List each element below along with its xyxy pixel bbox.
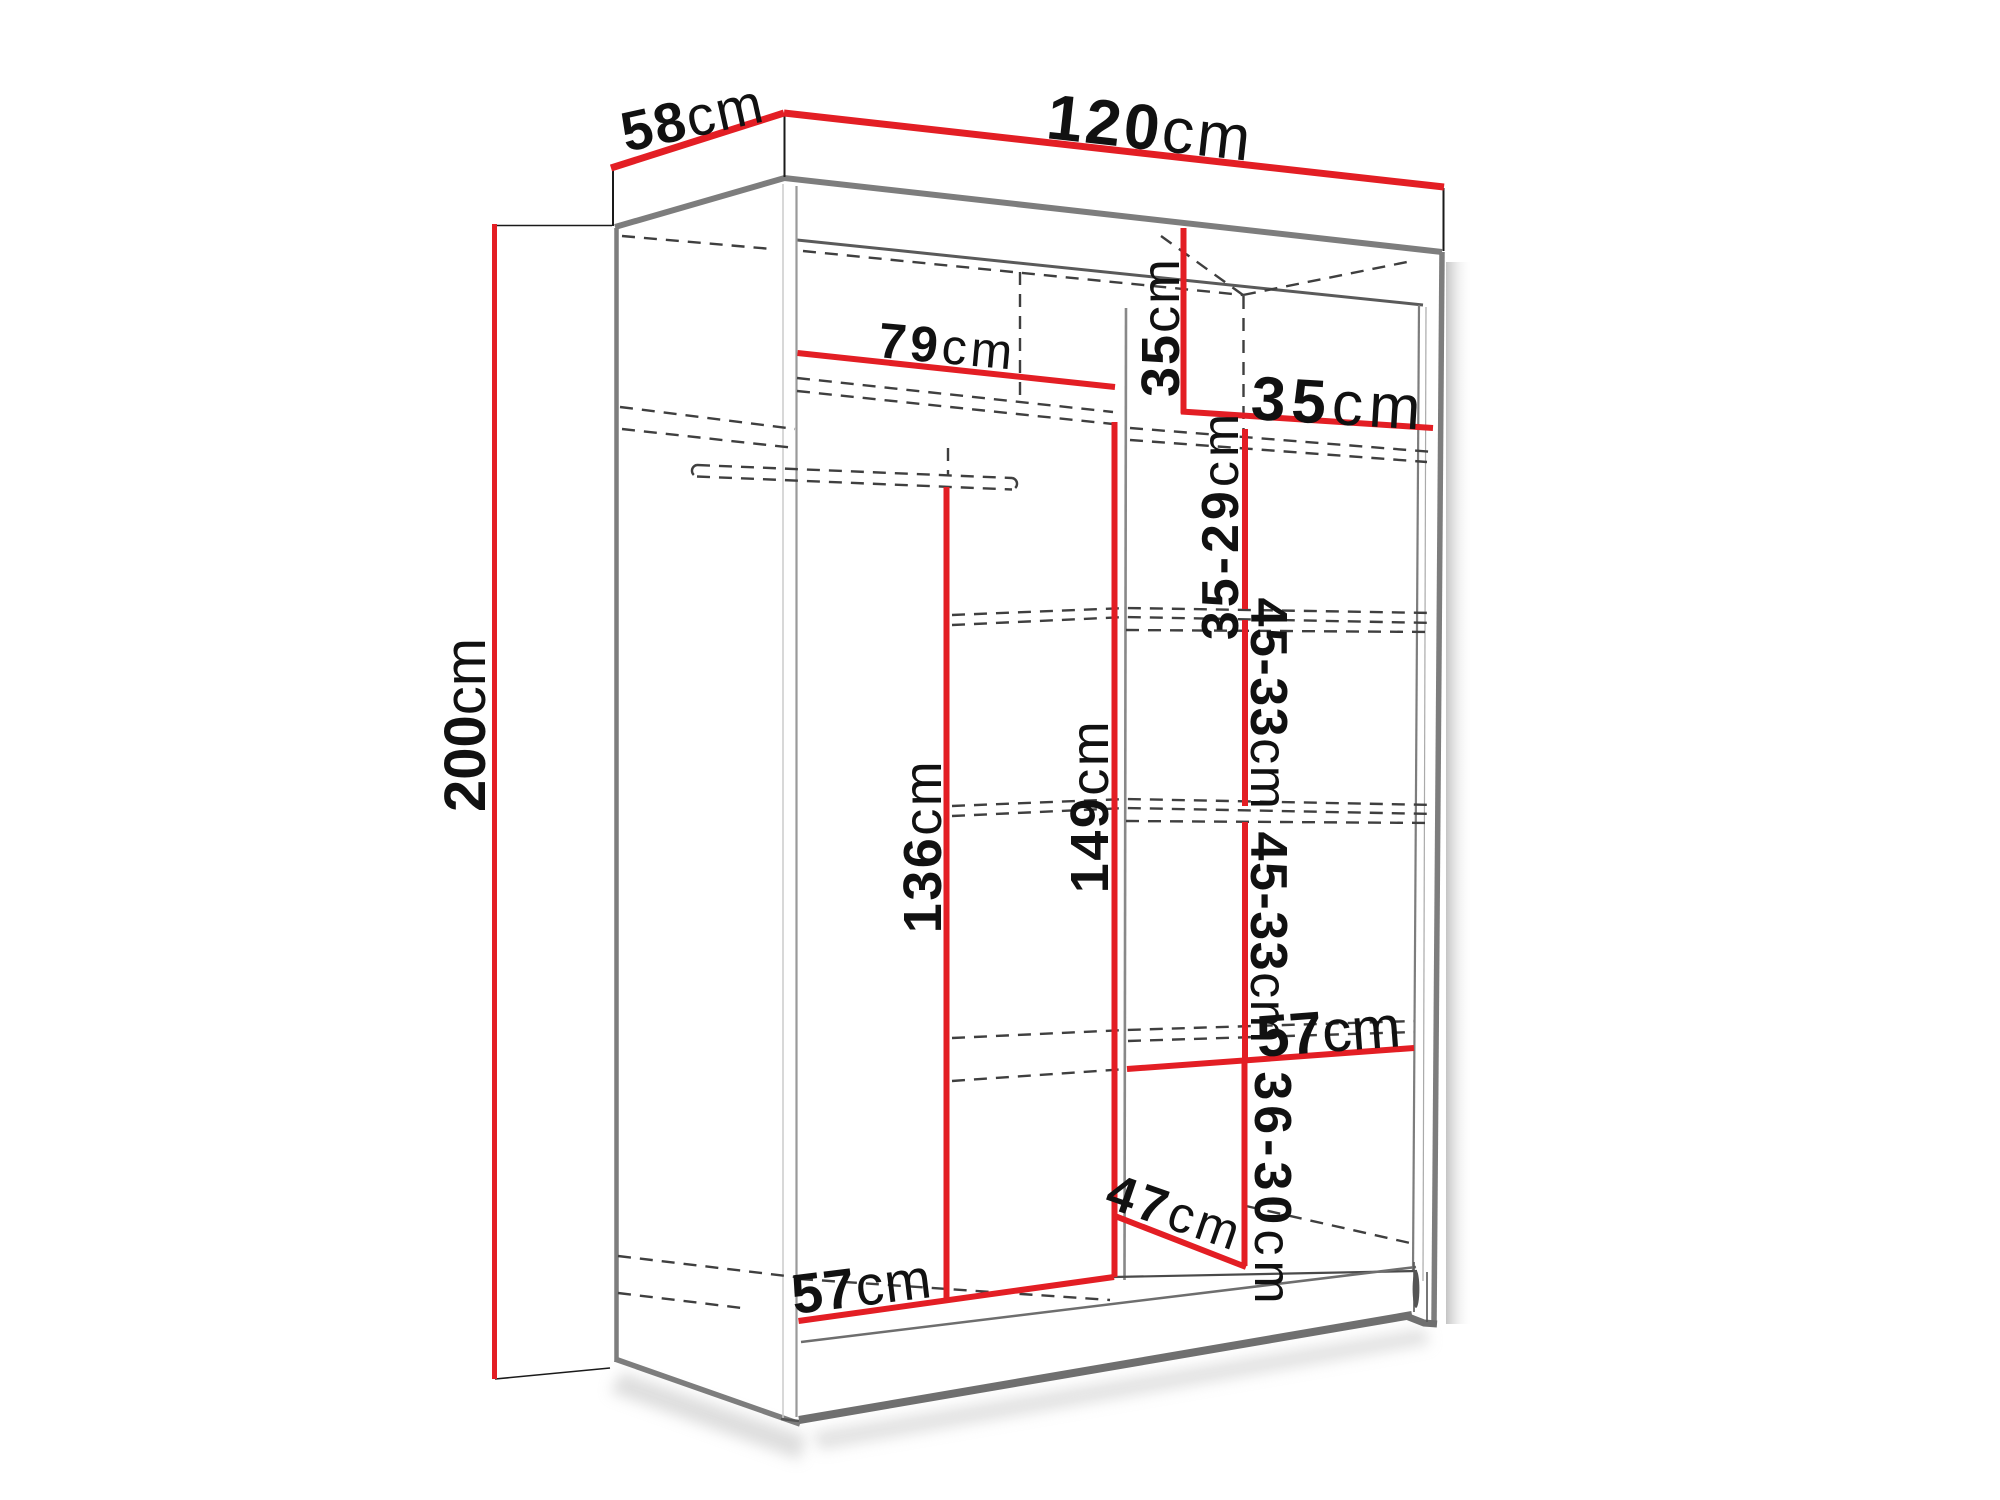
svg-text:200cm: 200cm [433, 638, 498, 812]
svg-text:45-33cm: 45-33cm [1239, 598, 1297, 811]
svg-text:36-30cm: 36-30cm [1243, 1071, 1301, 1308]
svg-text:35cm: 35cm [1131, 257, 1191, 397]
svg-text:136cm: 136cm [893, 759, 953, 934]
svg-text:47cm: 47cm [1099, 1163, 1251, 1263]
svg-text:120cm: 120cm [1043, 80, 1257, 175]
svg-text:58cm: 58cm [615, 71, 770, 164]
svg-text:35cm: 35cm [1249, 364, 1429, 444]
svg-text:57cm: 57cm [1254, 993, 1403, 1070]
svg-text:149cm: 149cm [1060, 719, 1120, 894]
svg-text:57cm: 57cm [788, 1246, 936, 1326]
svg-text:79cm: 79cm [876, 312, 1019, 381]
